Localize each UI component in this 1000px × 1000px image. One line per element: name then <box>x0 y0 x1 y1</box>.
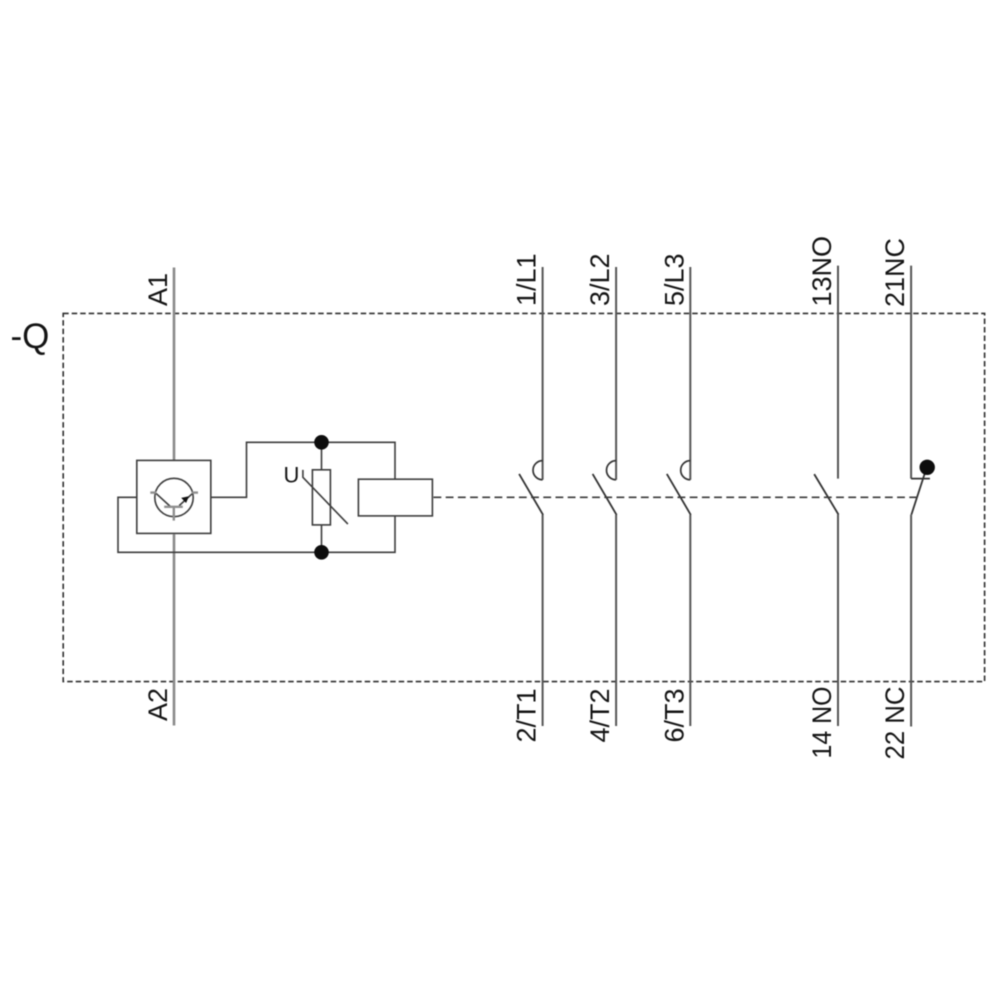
svg-text:2/T1: 2/T1 <box>512 689 542 743</box>
svg-text:5/L3: 5/L3 <box>659 253 689 306</box>
svg-text:14 NO: 14 NO <box>807 687 837 759</box>
svg-text:4/T2: 4/T2 <box>585 689 615 743</box>
svg-text:U: U <box>284 463 300 488</box>
svg-text:-Q: -Q <box>11 317 50 356</box>
svg-text:3/L2: 3/L2 <box>585 253 615 306</box>
svg-text:A1: A1 <box>143 273 173 306</box>
svg-text:13NO: 13NO <box>807 236 837 307</box>
svg-text:6/T3: 6/T3 <box>659 689 689 743</box>
svg-text:A2: A2 <box>143 688 173 721</box>
svg-text:22 NC: 22 NC <box>880 687 910 760</box>
svg-text:21NC: 21NC <box>880 238 910 307</box>
svg-text:1/L1: 1/L1 <box>512 253 542 306</box>
